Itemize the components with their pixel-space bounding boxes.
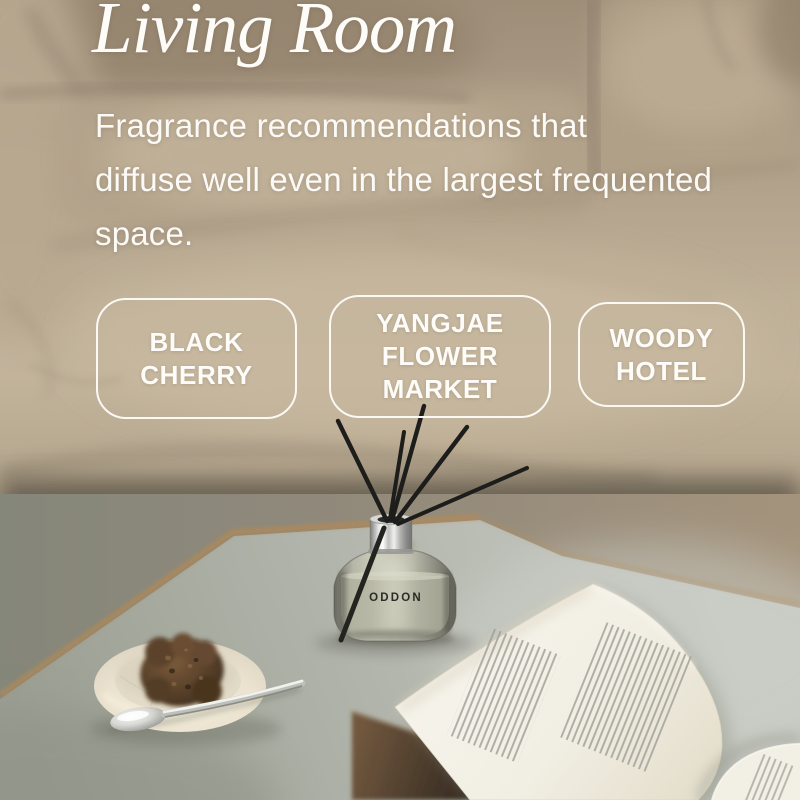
tag-woody-hotel[interactable]: WOODY HOTEL — [578, 302, 745, 407]
description-line: space. — [95, 207, 712, 261]
promo-image: ODDON Living Room Fragrance recommendati… — [0, 0, 800, 800]
description-line: Fragrance recommendations that — [95, 99, 712, 153]
text-overlay: Living Room Fragrance recommendations th… — [0, 0, 800, 800]
page-description: Fragrance recommendations that diffuse w… — [95, 99, 712, 261]
tag-yangjae-flower-market[interactable]: YANGJAE FLOWER MARKET — [329, 295, 551, 418]
tag-black-cherry[interactable]: BLACK CHERRY — [96, 298, 297, 419]
page-title: Living Room — [92, 0, 456, 71]
description-line: diffuse well even in the largest frequen… — [95, 153, 712, 207]
